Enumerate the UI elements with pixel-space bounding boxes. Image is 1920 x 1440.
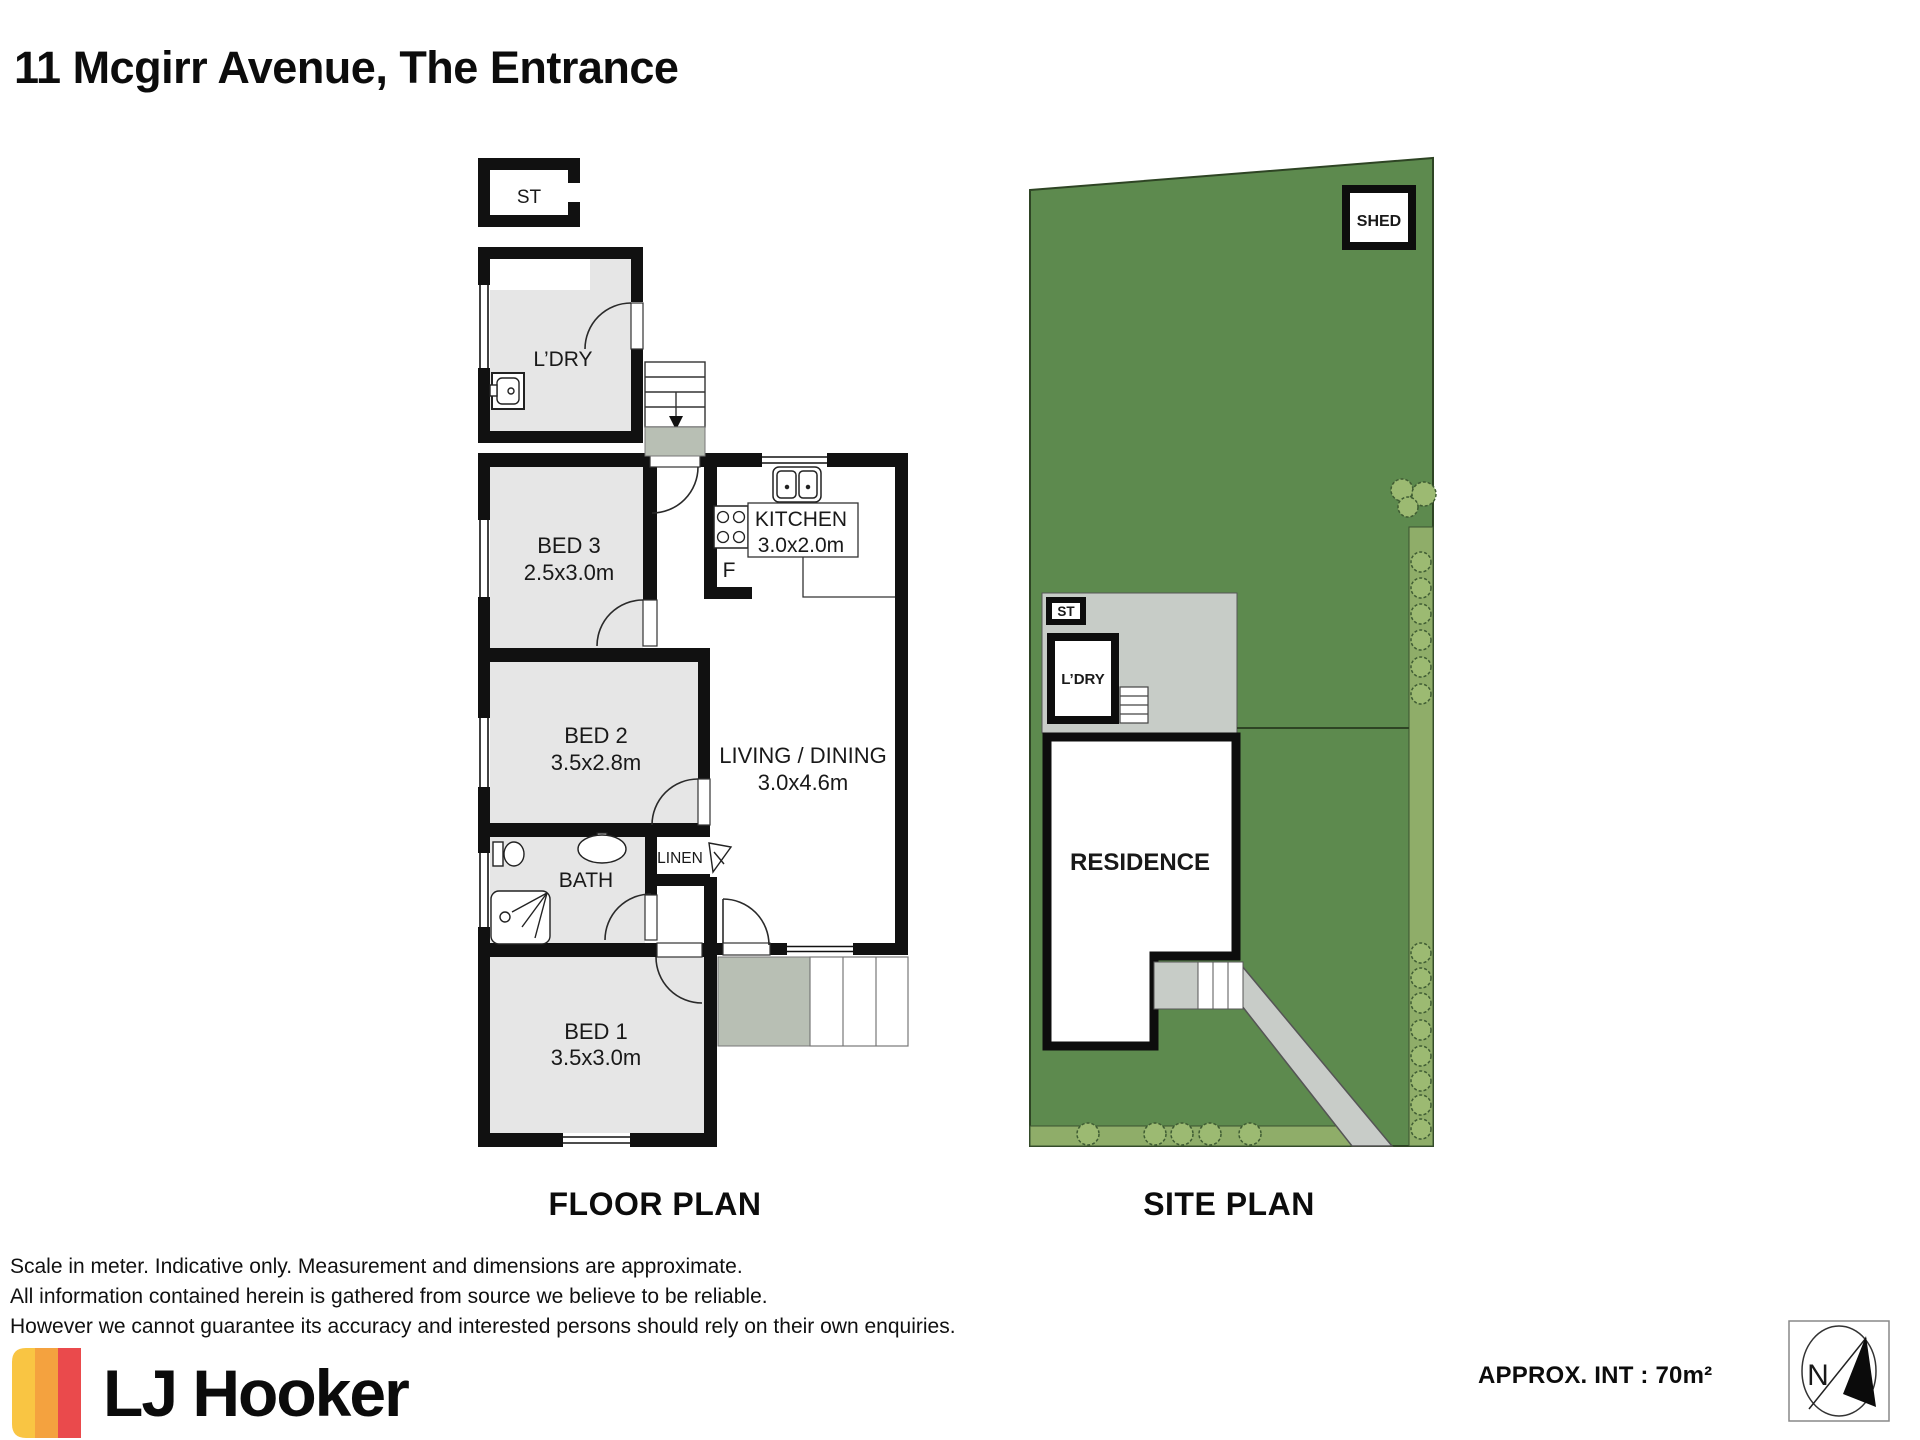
living-label: LIVING / DINING bbox=[719, 743, 886, 768]
plans-canvas: ST L’DRY BED 3 2.5x3.0m KITCHEN 3.0x2.0m… bbox=[0, 0, 1920, 1440]
living-dims: 3.0x4.6m bbox=[758, 770, 849, 795]
residence-label: RESIDENCE bbox=[1070, 849, 1210, 876]
bed1-label: BED 1 bbox=[564, 1019, 628, 1044]
lj-hooker-stripes-icon bbox=[12, 1348, 81, 1438]
kitchen-dims: 3.0x2.0m bbox=[758, 534, 844, 557]
lj-hooker-logo: LJ Hooker bbox=[12, 1348, 408, 1438]
floor-plan: ST L’DRY BED 3 2.5x3.0m KITCHEN 3.0x2.0m… bbox=[478, 158, 908, 1147]
window-bed3 bbox=[478, 520, 490, 597]
bush-icon bbox=[1398, 497, 1418, 517]
window-bed1 bbox=[563, 1133, 630, 1147]
window-ldry bbox=[478, 285, 490, 368]
linen-label: LINEN bbox=[657, 850, 703, 867]
stairs-icon bbox=[645, 362, 705, 430]
bush-icon bbox=[1411, 1071, 1431, 1091]
front-steps bbox=[810, 957, 908, 1046]
window-living bbox=[787, 943, 853, 955]
site-steps bbox=[1198, 962, 1243, 1009]
window-kitchen bbox=[762, 453, 827, 467]
disclaimer-line: However we cannot guarantee its accuracy… bbox=[10, 1312, 956, 1342]
bed2-dims: 3.5x2.8m bbox=[551, 750, 642, 775]
site-st-label: ST bbox=[1057, 604, 1075, 619]
disclaimer: Scale in meter. Indicative only. Measure… bbox=[10, 1252, 956, 1342]
north-arrow-icon: N bbox=[1789, 1321, 1889, 1421]
ldry-bench-notch bbox=[490, 259, 590, 290]
stove-icon bbox=[714, 506, 748, 548]
window-bath bbox=[478, 853, 490, 927]
bush-icon bbox=[1077, 1123, 1099, 1145]
bath-door bbox=[645, 895, 657, 940]
rear-landing bbox=[645, 427, 705, 456]
disclaimer-line: All information contained herein is gath… bbox=[10, 1282, 956, 1312]
bush-icon bbox=[1411, 684, 1431, 704]
site-stairs-icon bbox=[1120, 687, 1148, 723]
bush-icon bbox=[1411, 578, 1431, 598]
linen-door-icon bbox=[709, 843, 731, 872]
bed3-dims: 2.5x3.0m bbox=[524, 560, 615, 585]
stripe-yellow bbox=[12, 1348, 35, 1438]
site-plan-caption: SITE PLAN bbox=[1143, 1186, 1315, 1223]
floor-plan-caption: FLOOR PLAN bbox=[549, 1186, 762, 1223]
kitchen-label: KITCHEN bbox=[755, 508, 847, 531]
shed-label: SHED bbox=[1357, 213, 1401, 230]
bed2-door bbox=[698, 779, 710, 825]
st-label: ST bbox=[517, 187, 542, 208]
approx-internal-area: APPROX. INT : 70m² bbox=[1478, 1362, 1712, 1390]
page-title: 11 Mcgirr Avenue, The Entrance bbox=[14, 42, 678, 94]
shower-icon bbox=[491, 891, 550, 944]
front-door bbox=[723, 943, 770, 955]
bush-icon bbox=[1144, 1123, 1166, 1145]
brand-name: LJ Hooker bbox=[103, 1348, 408, 1438]
laundry-tub-icon bbox=[490, 373, 524, 409]
bed3-door bbox=[643, 600, 657, 646]
bush-icon bbox=[1199, 1123, 1221, 1145]
front-porch bbox=[718, 957, 810, 1046]
ldry-label: L’DRY bbox=[533, 348, 592, 371]
bath-label: BATH bbox=[559, 869, 613, 892]
site-plan: SHED ST L’DRY RESIDENCE bbox=[1030, 158, 1436, 1146]
bed2-label: BED 2 bbox=[564, 723, 628, 748]
bush-icon bbox=[1411, 943, 1431, 963]
toilet-icon bbox=[493, 842, 524, 866]
stripe-orange bbox=[35, 1348, 58, 1438]
page: ST L’DRY BED 3 2.5x3.0m KITCHEN 3.0x2.0m… bbox=[0, 0, 1920, 1440]
bush-icon bbox=[1411, 1095, 1431, 1115]
bush-icon bbox=[1411, 1046, 1431, 1066]
disclaimer-line: Scale in meter. Indicative only. Measure… bbox=[10, 1252, 956, 1282]
compass-n-label: N bbox=[1807, 1359, 1829, 1392]
site-porch bbox=[1154, 962, 1198, 1009]
fridge-label: F bbox=[723, 559, 736, 582]
bush-icon bbox=[1411, 552, 1431, 572]
bush-icon bbox=[1411, 968, 1431, 988]
bed3-label: BED 3 bbox=[537, 533, 601, 558]
bush-icon bbox=[1411, 604, 1431, 624]
bush-icon bbox=[1171, 1123, 1193, 1145]
ldry-door bbox=[631, 303, 643, 349]
front-door-arc bbox=[723, 899, 769, 945]
site-ldry-label: L’DRY bbox=[1061, 671, 1105, 688]
bush-icon bbox=[1411, 657, 1431, 677]
bush-icon bbox=[1411, 1119, 1431, 1139]
stripe-red bbox=[58, 1348, 81, 1438]
bush-icon bbox=[1239, 1123, 1261, 1145]
bush-icon bbox=[1411, 1020, 1431, 1040]
bush-icon bbox=[1411, 630, 1431, 650]
rear-entry-door-arc bbox=[652, 467, 698, 513]
bed1-dims: 3.5x3.0m bbox=[551, 1045, 642, 1070]
bush-icon bbox=[1411, 993, 1431, 1013]
window-bed2 bbox=[478, 718, 490, 787]
bed1-door bbox=[657, 943, 702, 957]
kitchen-sink-icon bbox=[773, 467, 821, 502]
